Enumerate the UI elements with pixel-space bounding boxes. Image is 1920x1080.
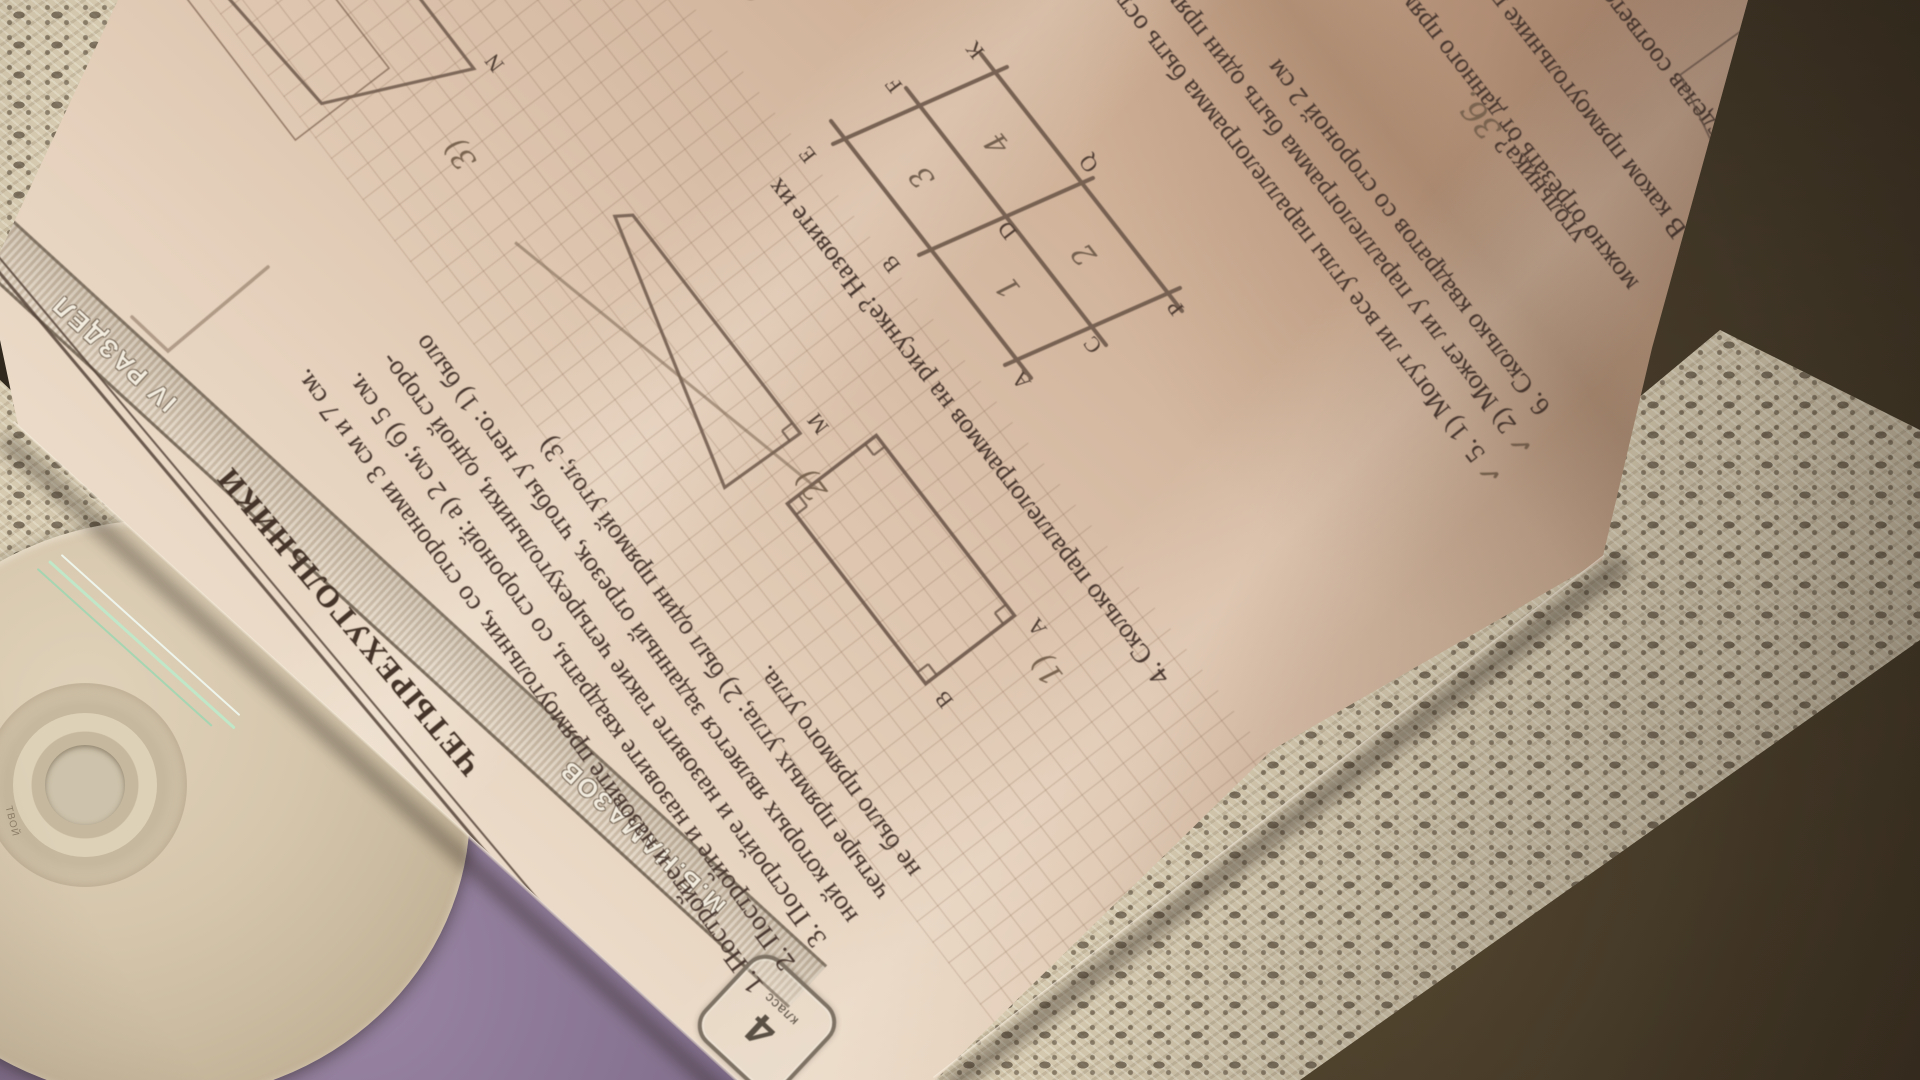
pencil-answer-9: 9 (726, 0, 787, 14)
parallelogram-figure: А В Е С D F Р Q К 1 2 3 4 (780, 20, 1210, 410)
vertex-label: А (1807, 95, 1837, 123)
vertex-label: В (1714, 188, 1743, 215)
pencil-check-stroke (120, 255, 280, 375)
vertex-label: А (1022, 613, 1052, 641)
pencil-cell-number: 4 (978, 125, 1018, 162)
vertex-label: F (880, 73, 907, 98)
task8-parallelogram-figure: В А (1620, 0, 1920, 250)
vertex-label: С (1078, 332, 1107, 359)
pencil-cell-number: 2 (1065, 236, 1105, 273)
pencil-cell-number: 1 (989, 269, 1028, 306)
vertex-label: Q (1074, 150, 1104, 178)
vertex-label: Е (793, 142, 821, 168)
pencil-cell-number: 3 (903, 159, 942, 196)
vertex-label: А (1006, 367, 1036, 395)
vertex-label: В (929, 686, 958, 713)
cd-hub-hole (45, 745, 125, 825)
task-8-line: 8. Назовите (1763, 0, 1876, 122)
pencil-tag-3: 3) (437, 131, 484, 177)
photo-scene: ТВОЙ М.Б.НАМАЗОВ IV РАЗДЕЛ 4 класс ЧЕТЫР… (0, 0, 1920, 1080)
vertex-label: В (876, 251, 905, 278)
vertex-label: N (479, 49, 509, 77)
